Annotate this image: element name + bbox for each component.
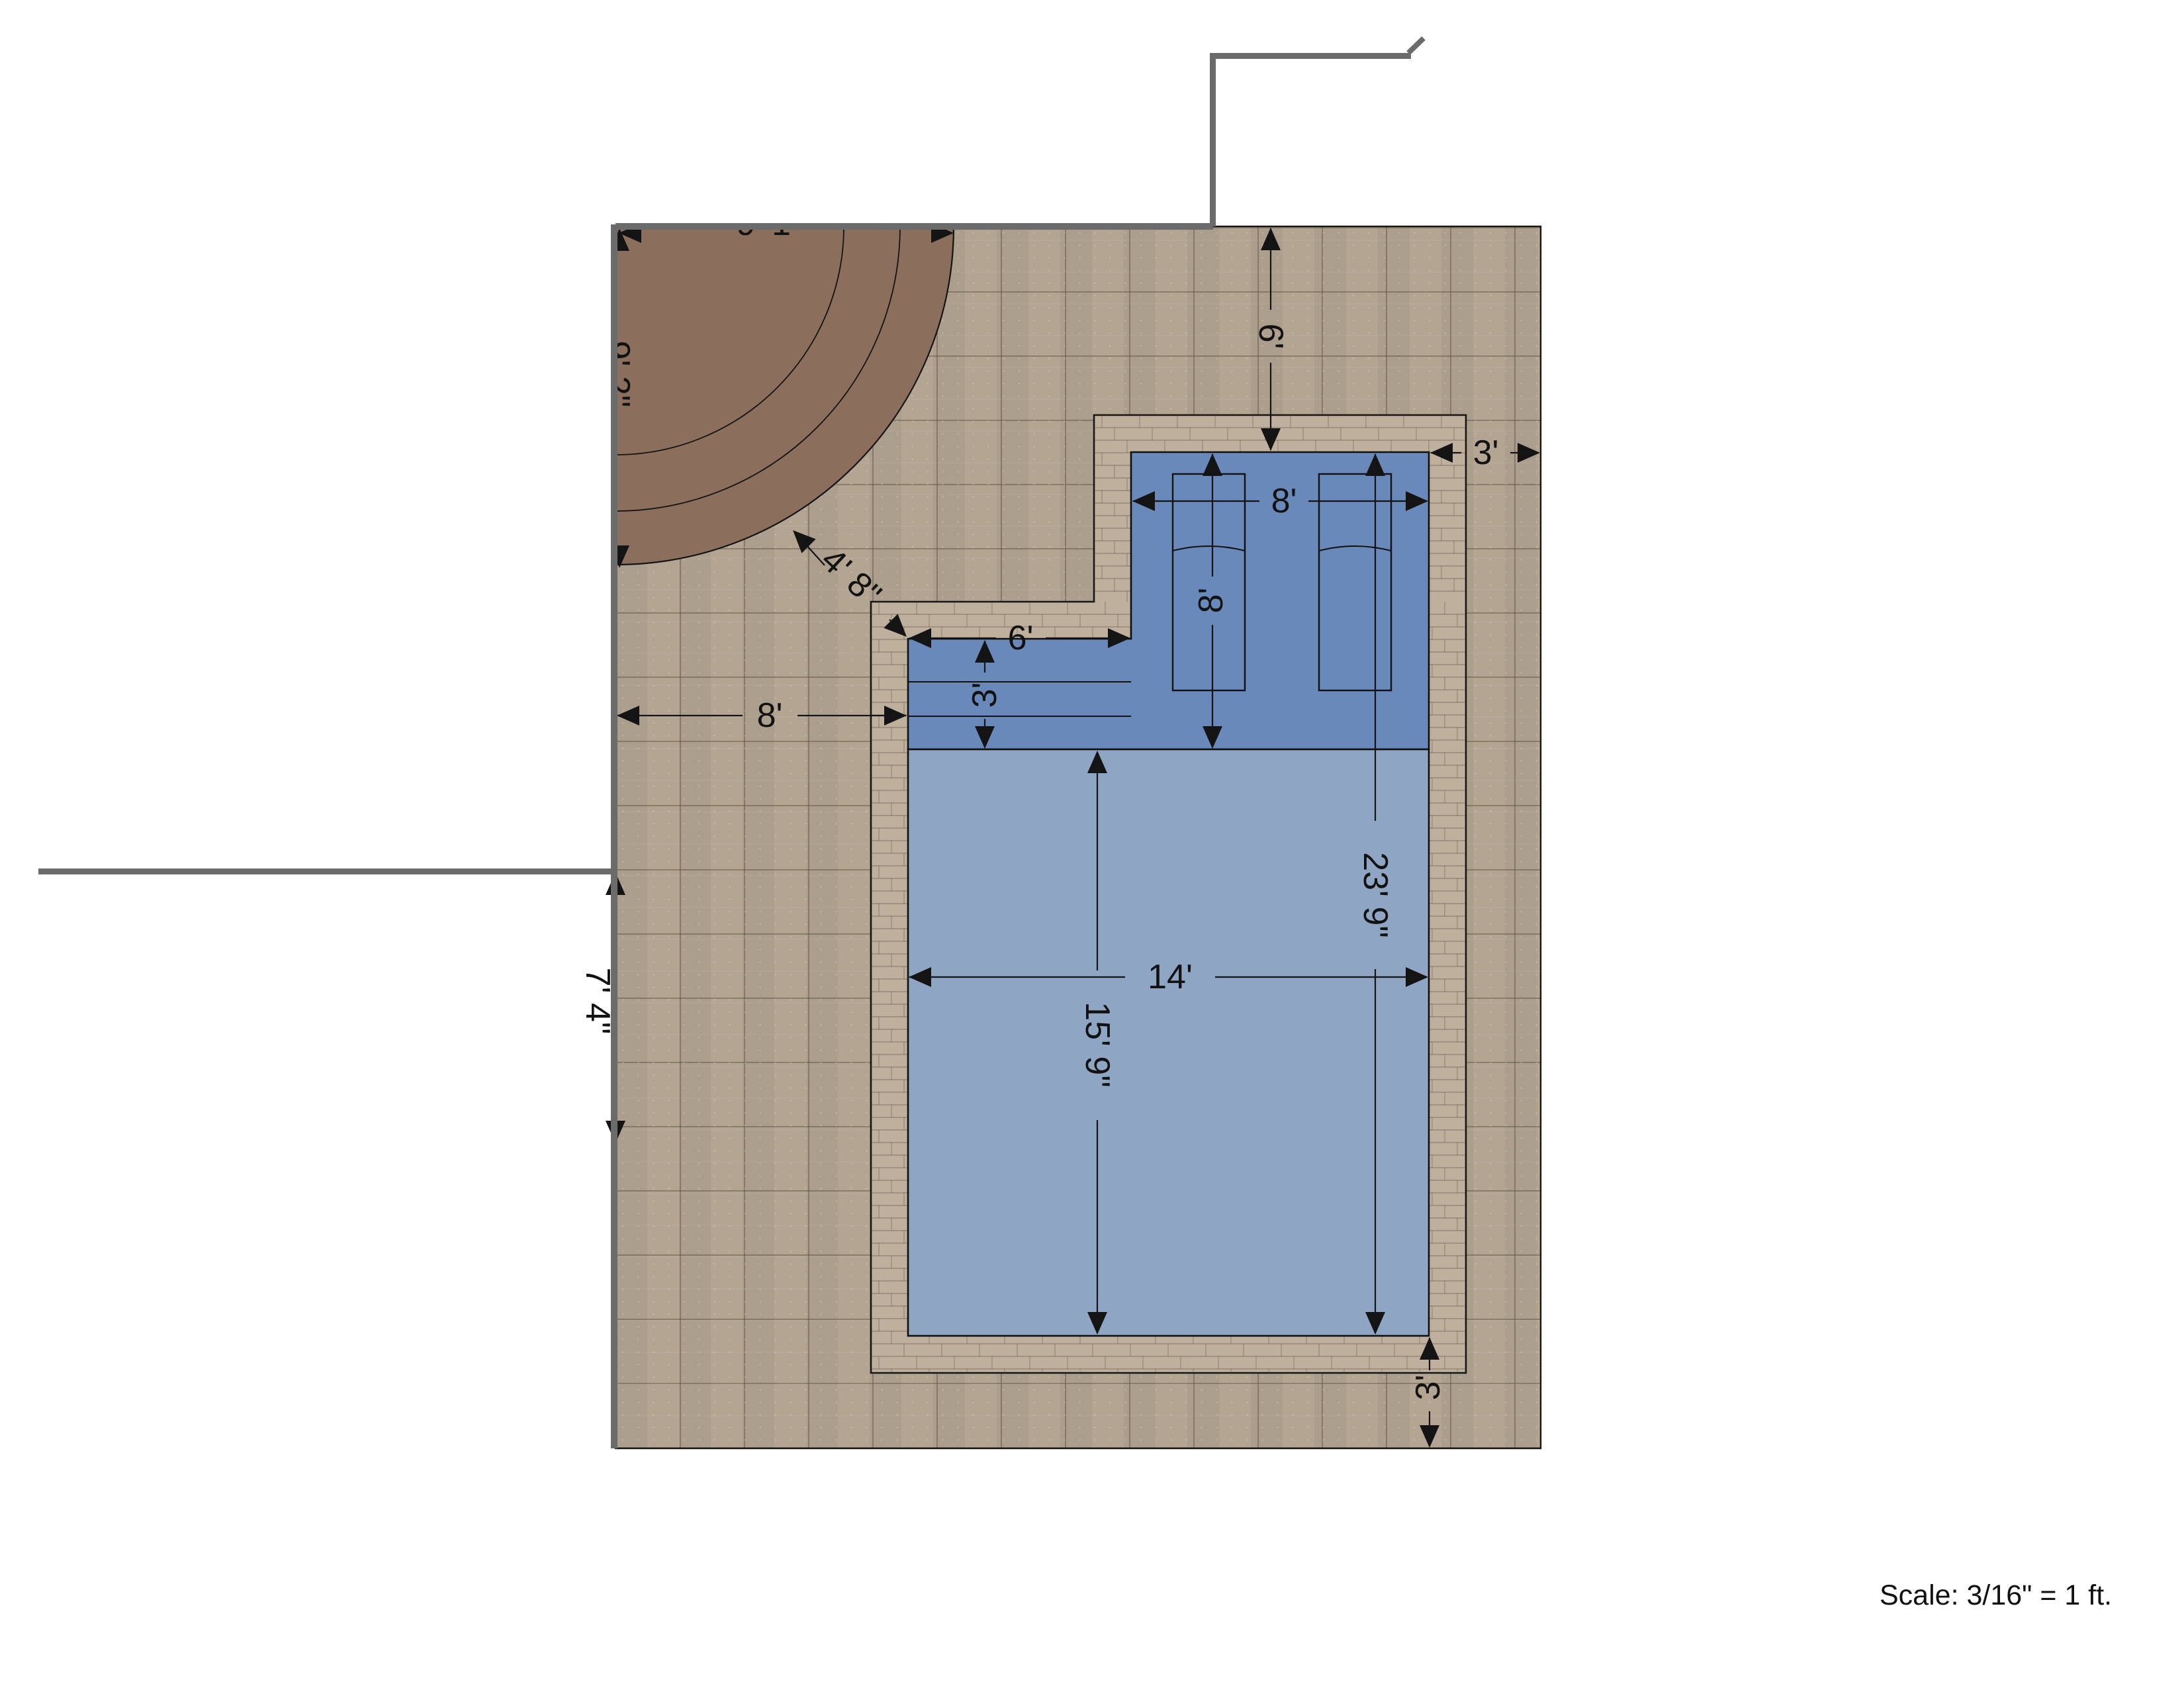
dim-pool-total-length: 23' 9" (1358, 852, 1392, 938)
arrowhead-icon (615, 228, 629, 251)
dim-step-width: 6' (1008, 621, 1034, 655)
pool-plan-canvas: 9' 1" 9' 2" 6' 3' 8' 8' 6' 3' 8' 23' 9" … (0, 0, 2184, 1688)
dim-ledge-depth: 8' (1194, 588, 1228, 614)
dim-bottom-setback: 3' (1411, 1375, 1445, 1401)
dim-left-walkway: 8' (757, 698, 783, 733)
circle-feature-svg (615, 226, 1541, 1448)
scale-note: Scale: 3/16" = 1 ft. (1880, 1579, 2112, 1612)
dim-circle-left: 9' 2" (615, 341, 635, 408)
house-wall-jog-vertical (1210, 53, 1216, 226)
paver-patio: 9' 1" 9' 2" (615, 226, 1541, 1448)
dim-main-pool-length: 15' 9" (1080, 1002, 1115, 1088)
dim-ledge-width: 8' (1271, 484, 1297, 518)
house-wall-top (615, 223, 1213, 230)
house-wall-jog-horizontal (1210, 53, 1411, 59)
dim-top-setback: 6' (1253, 324, 1288, 350)
house-wall-side (38, 868, 612, 874)
circle-feature-outer (615, 226, 954, 565)
house-wall-left (611, 224, 617, 1448)
dim-step-depth: 3' (968, 682, 1002, 708)
dim-pool-width: 14' (1148, 960, 1193, 994)
dim-house-side-gap: 7' 4" (580, 968, 615, 1035)
house-wall-break-tick (1406, 36, 1426, 55)
arrowhead-icon (615, 545, 629, 568)
dim-right-setback: 3' (1473, 436, 1499, 470)
